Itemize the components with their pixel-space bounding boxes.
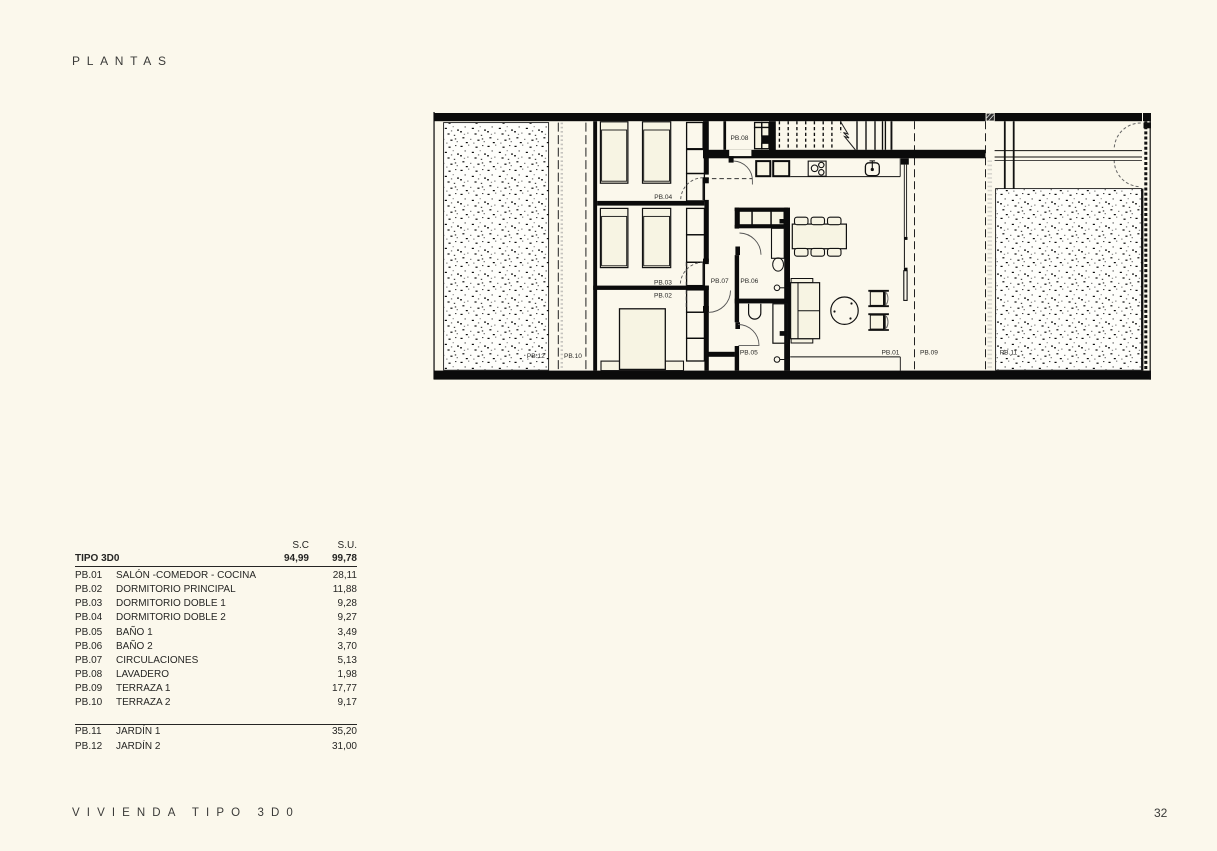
svg-text:PB.04: PB.04	[654, 194, 672, 201]
svg-text:PB.06: PB.06	[740, 278, 758, 285]
svg-text:PB.01: PB.01	[882, 350, 900, 357]
svg-text:PB.12: PB.12	[527, 353, 545, 360]
svg-text:PB.07: PB.07	[711, 278, 729, 285]
svg-text:PB.09: PB.09	[920, 350, 938, 357]
svg-text:PB.03: PB.03	[654, 279, 672, 286]
svg-text:PB.10: PB.10	[564, 353, 582, 360]
svg-text:PB.08: PB.08	[731, 135, 749, 142]
svg-text:PB.11: PB.11	[1000, 350, 1018, 357]
svg-text:PB.05: PB.05	[740, 350, 758, 357]
svg-text:PB.02: PB.02	[654, 293, 672, 300]
